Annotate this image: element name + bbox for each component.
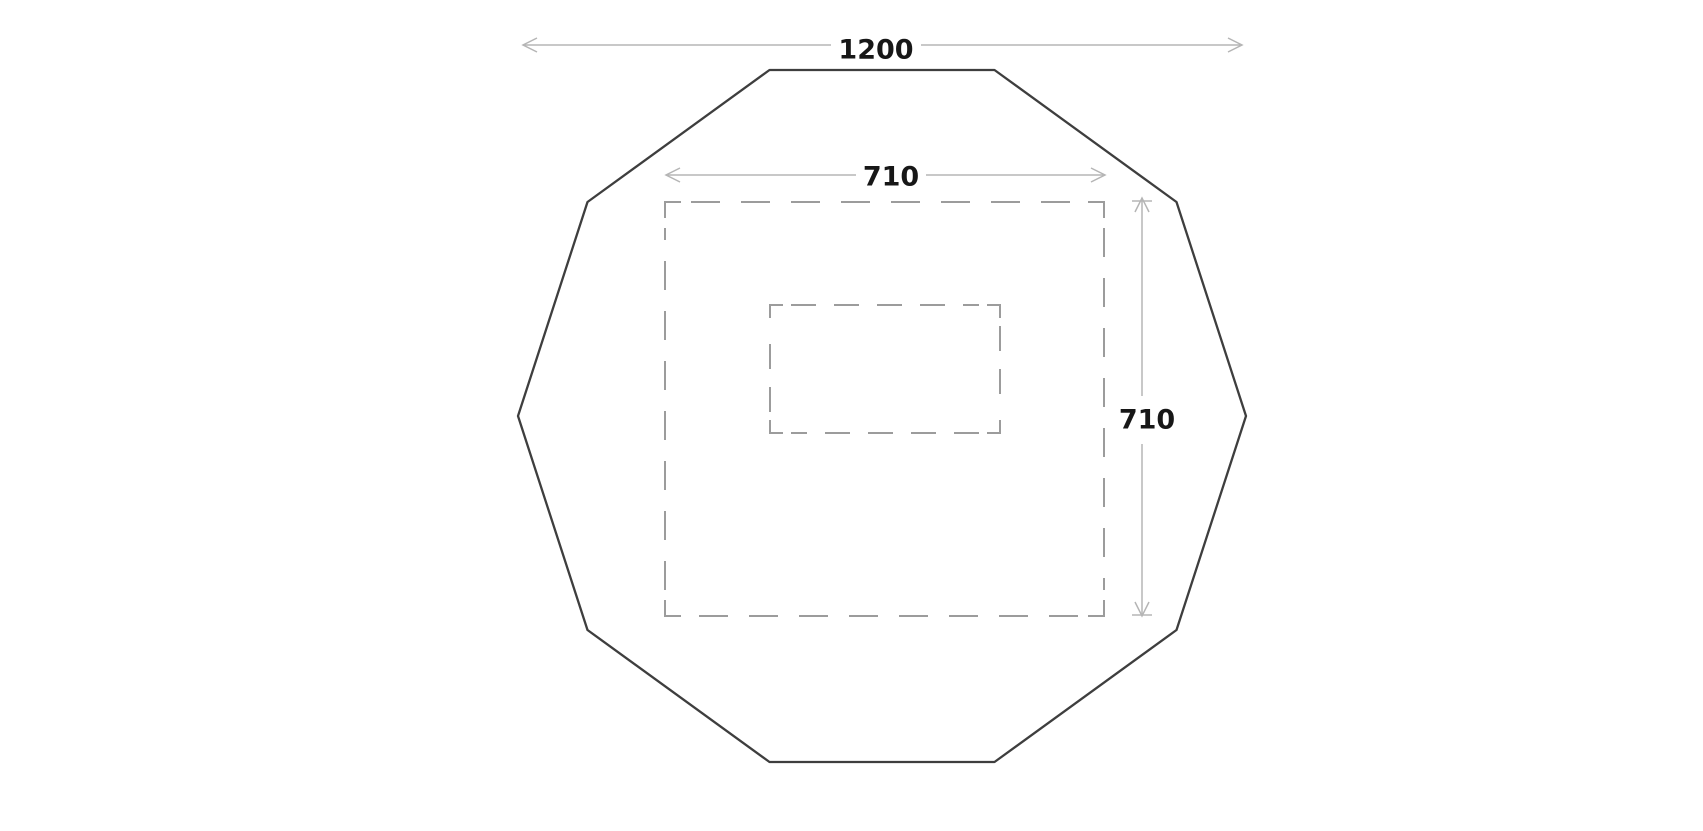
inner-dashed-rect-corner <box>987 305 1000 318</box>
dimensioned-plan-svg: 1200710710 <box>0 0 1703 827</box>
inner-dashed-rect-corner <box>987 420 1000 433</box>
outer-dashed-square-corner <box>1088 202 1104 218</box>
inner-dashed-rect-corner <box>770 305 783 318</box>
dimension-platform-width-label: 710 <box>863 162 919 193</box>
dimension-overall-width-label: 1200 <box>838 35 913 66</box>
outer-dashed-square-corner <box>1088 600 1104 616</box>
dimension-platform-height-label: 710 <box>1119 405 1175 436</box>
inner-dashed-rect-corner <box>770 420 783 433</box>
drawing-canvas: 1200710710 <box>0 0 1703 827</box>
outer-dashed-square-corner <box>665 600 681 616</box>
outer-dashed-square-corner <box>665 202 681 218</box>
